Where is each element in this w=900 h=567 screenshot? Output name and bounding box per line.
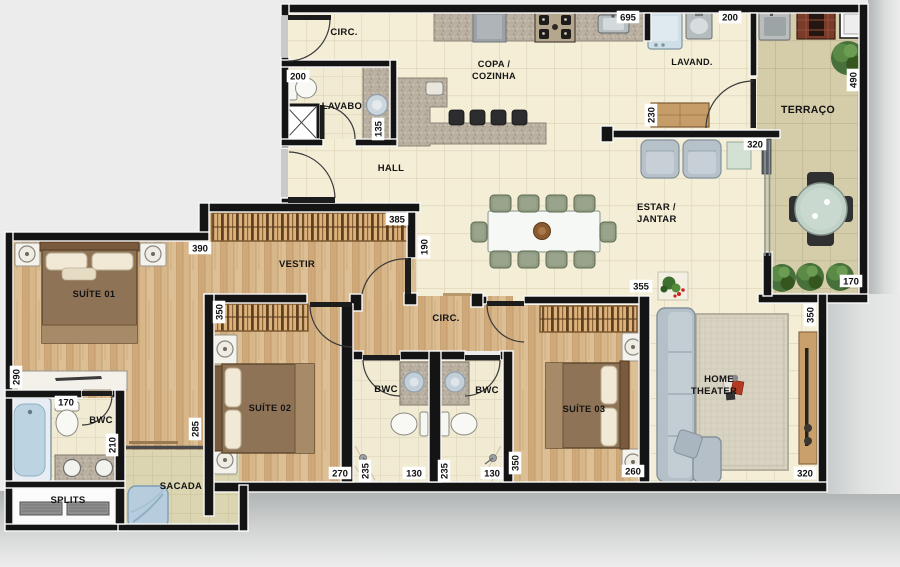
svg-text:350: 350 xyxy=(511,455,522,471)
svg-text:ESTAR /: ESTAR / xyxy=(637,202,676,213)
svg-text:695: 695 xyxy=(620,13,637,24)
svg-text:TERRAÇO: TERRAÇO xyxy=(781,104,835,116)
svg-text:170: 170 xyxy=(843,277,859,288)
svg-text:BWC: BWC xyxy=(89,415,113,426)
svg-text:BWC: BWC xyxy=(475,385,499,396)
svg-text:HOME: HOME xyxy=(704,374,734,385)
svg-text:LAVABO: LAVABO xyxy=(322,101,363,112)
svg-text:320: 320 xyxy=(797,469,813,480)
svg-text:THEATER: THEATER xyxy=(691,386,737,397)
svg-text:270: 270 xyxy=(332,469,348,480)
svg-text:210: 210 xyxy=(108,437,119,453)
svg-text:390: 390 xyxy=(192,244,208,255)
svg-text:VESTIR: VESTIR xyxy=(279,259,315,270)
svg-text:355: 355 xyxy=(633,282,650,293)
svg-text:SUÍTE 01: SUÍTE 01 xyxy=(73,288,116,299)
svg-text:285: 285 xyxy=(191,420,202,437)
svg-text:320: 320 xyxy=(747,140,763,151)
svg-text:200: 200 xyxy=(290,72,306,83)
svg-text:200: 200 xyxy=(722,13,738,24)
svg-text:CIRC.: CIRC. xyxy=(432,313,459,324)
svg-text:290: 290 xyxy=(12,369,23,385)
svg-text:COPA /: COPA / xyxy=(478,59,511,69)
svg-text:LAVAND.: LAVAND. xyxy=(671,57,713,67)
svg-text:BWC: BWC xyxy=(374,384,398,395)
svg-text:130: 130 xyxy=(484,469,500,480)
svg-text:SPLITS: SPLITS xyxy=(50,495,85,506)
svg-text:350: 350 xyxy=(806,307,817,323)
svg-text:260: 260 xyxy=(625,467,641,478)
svg-text:235: 235 xyxy=(361,462,372,479)
svg-text:COZINHA: COZINHA xyxy=(472,71,516,81)
svg-text:SUÍTE 03: SUÍTE 03 xyxy=(563,403,606,414)
svg-text:490: 490 xyxy=(849,72,860,88)
svg-text:CIRC.: CIRC. xyxy=(330,27,357,38)
svg-text:130: 130 xyxy=(406,469,422,480)
svg-text:190: 190 xyxy=(420,239,431,255)
svg-text:235: 235 xyxy=(440,462,451,479)
svg-text:350: 350 xyxy=(215,304,226,320)
svg-text:170: 170 xyxy=(58,398,74,409)
svg-text:385: 385 xyxy=(389,215,406,226)
svg-text:135: 135 xyxy=(374,120,385,137)
svg-text:SUÍTE 02: SUÍTE 02 xyxy=(249,402,292,413)
svg-text:HALL: HALL xyxy=(378,163,405,174)
svg-text:JANTAR: JANTAR xyxy=(637,214,677,225)
svg-text:SACADA: SACADA xyxy=(160,481,202,492)
svg-text:230: 230 xyxy=(647,107,658,123)
